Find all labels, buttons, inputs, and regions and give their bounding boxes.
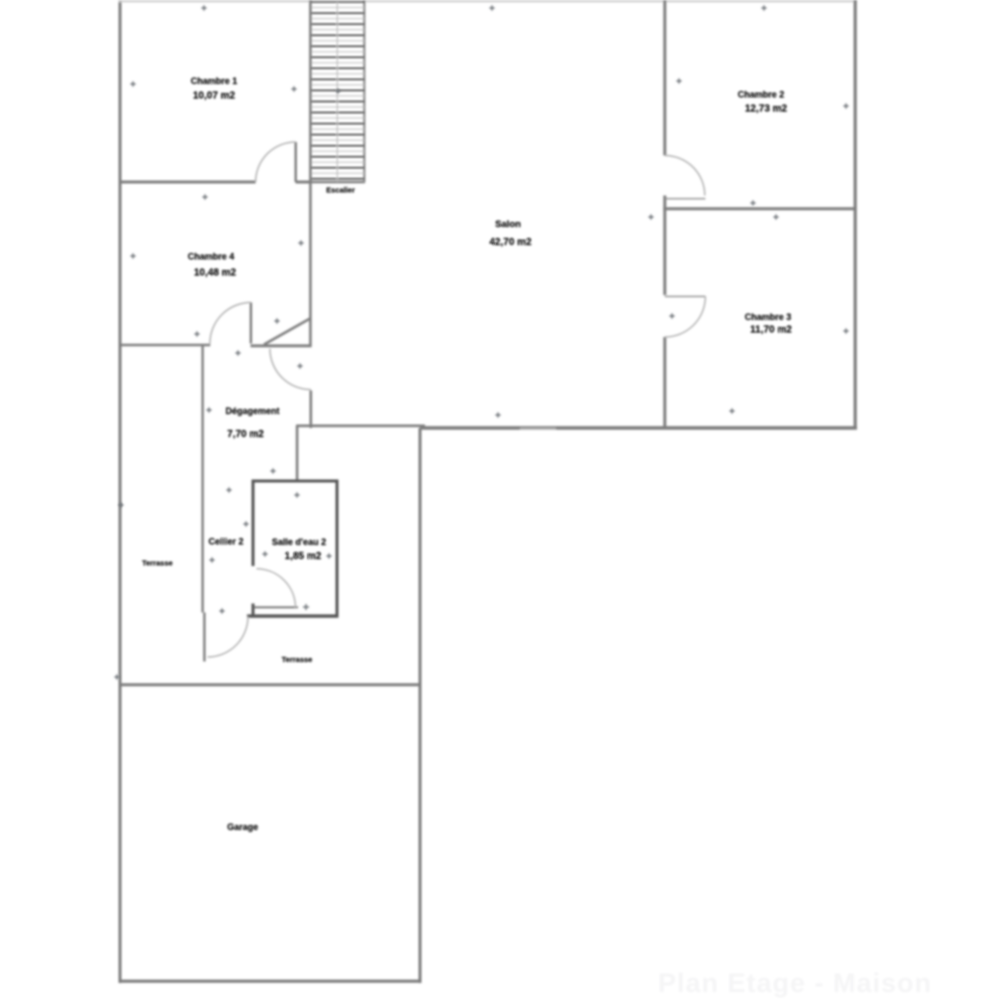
svg-text:12,73 m2: 12,73 m2 <box>745 104 788 115</box>
svg-text:1,85 m2: 1,85 m2 <box>285 551 322 562</box>
svg-text:Terrasse: Terrasse <box>142 559 173 568</box>
svg-text:Escalier: Escalier <box>326 186 355 195</box>
svg-text:11,70 m2: 11,70 m2 <box>750 325 792 336</box>
svg-text:Cellier 2: Cellier 2 <box>208 537 243 547</box>
svg-text:Chambre 2: Chambre 2 <box>738 90 785 100</box>
svg-text:42,70 m2: 42,70 m2 <box>489 237 532 248</box>
svg-text:Garage: Garage <box>227 822 258 832</box>
svg-text:Salon: Salon <box>495 219 521 230</box>
svg-text:Chambre 4: Chambre 4 <box>188 252 235 262</box>
svg-text:Dégagement: Dégagement <box>225 406 279 416</box>
svg-text:Terrasse: Terrasse <box>282 655 313 664</box>
svg-text:Plan Etage - Maison: Plan Etage - Maison <box>658 968 932 998</box>
svg-text:Chambre 3: Chambre 3 <box>745 312 792 322</box>
svg-text:10,07 m2: 10,07 m2 <box>193 91 236 102</box>
svg-text:Salle d'eau 2: Salle d'eau 2 <box>272 537 326 547</box>
svg-text:7,70 m2: 7,70 m2 <box>227 429 264 440</box>
svg-text:10,48 m2: 10,48 m2 <box>194 268 237 279</box>
svg-text:Chambre 1: Chambre 1 <box>191 76 238 86</box>
